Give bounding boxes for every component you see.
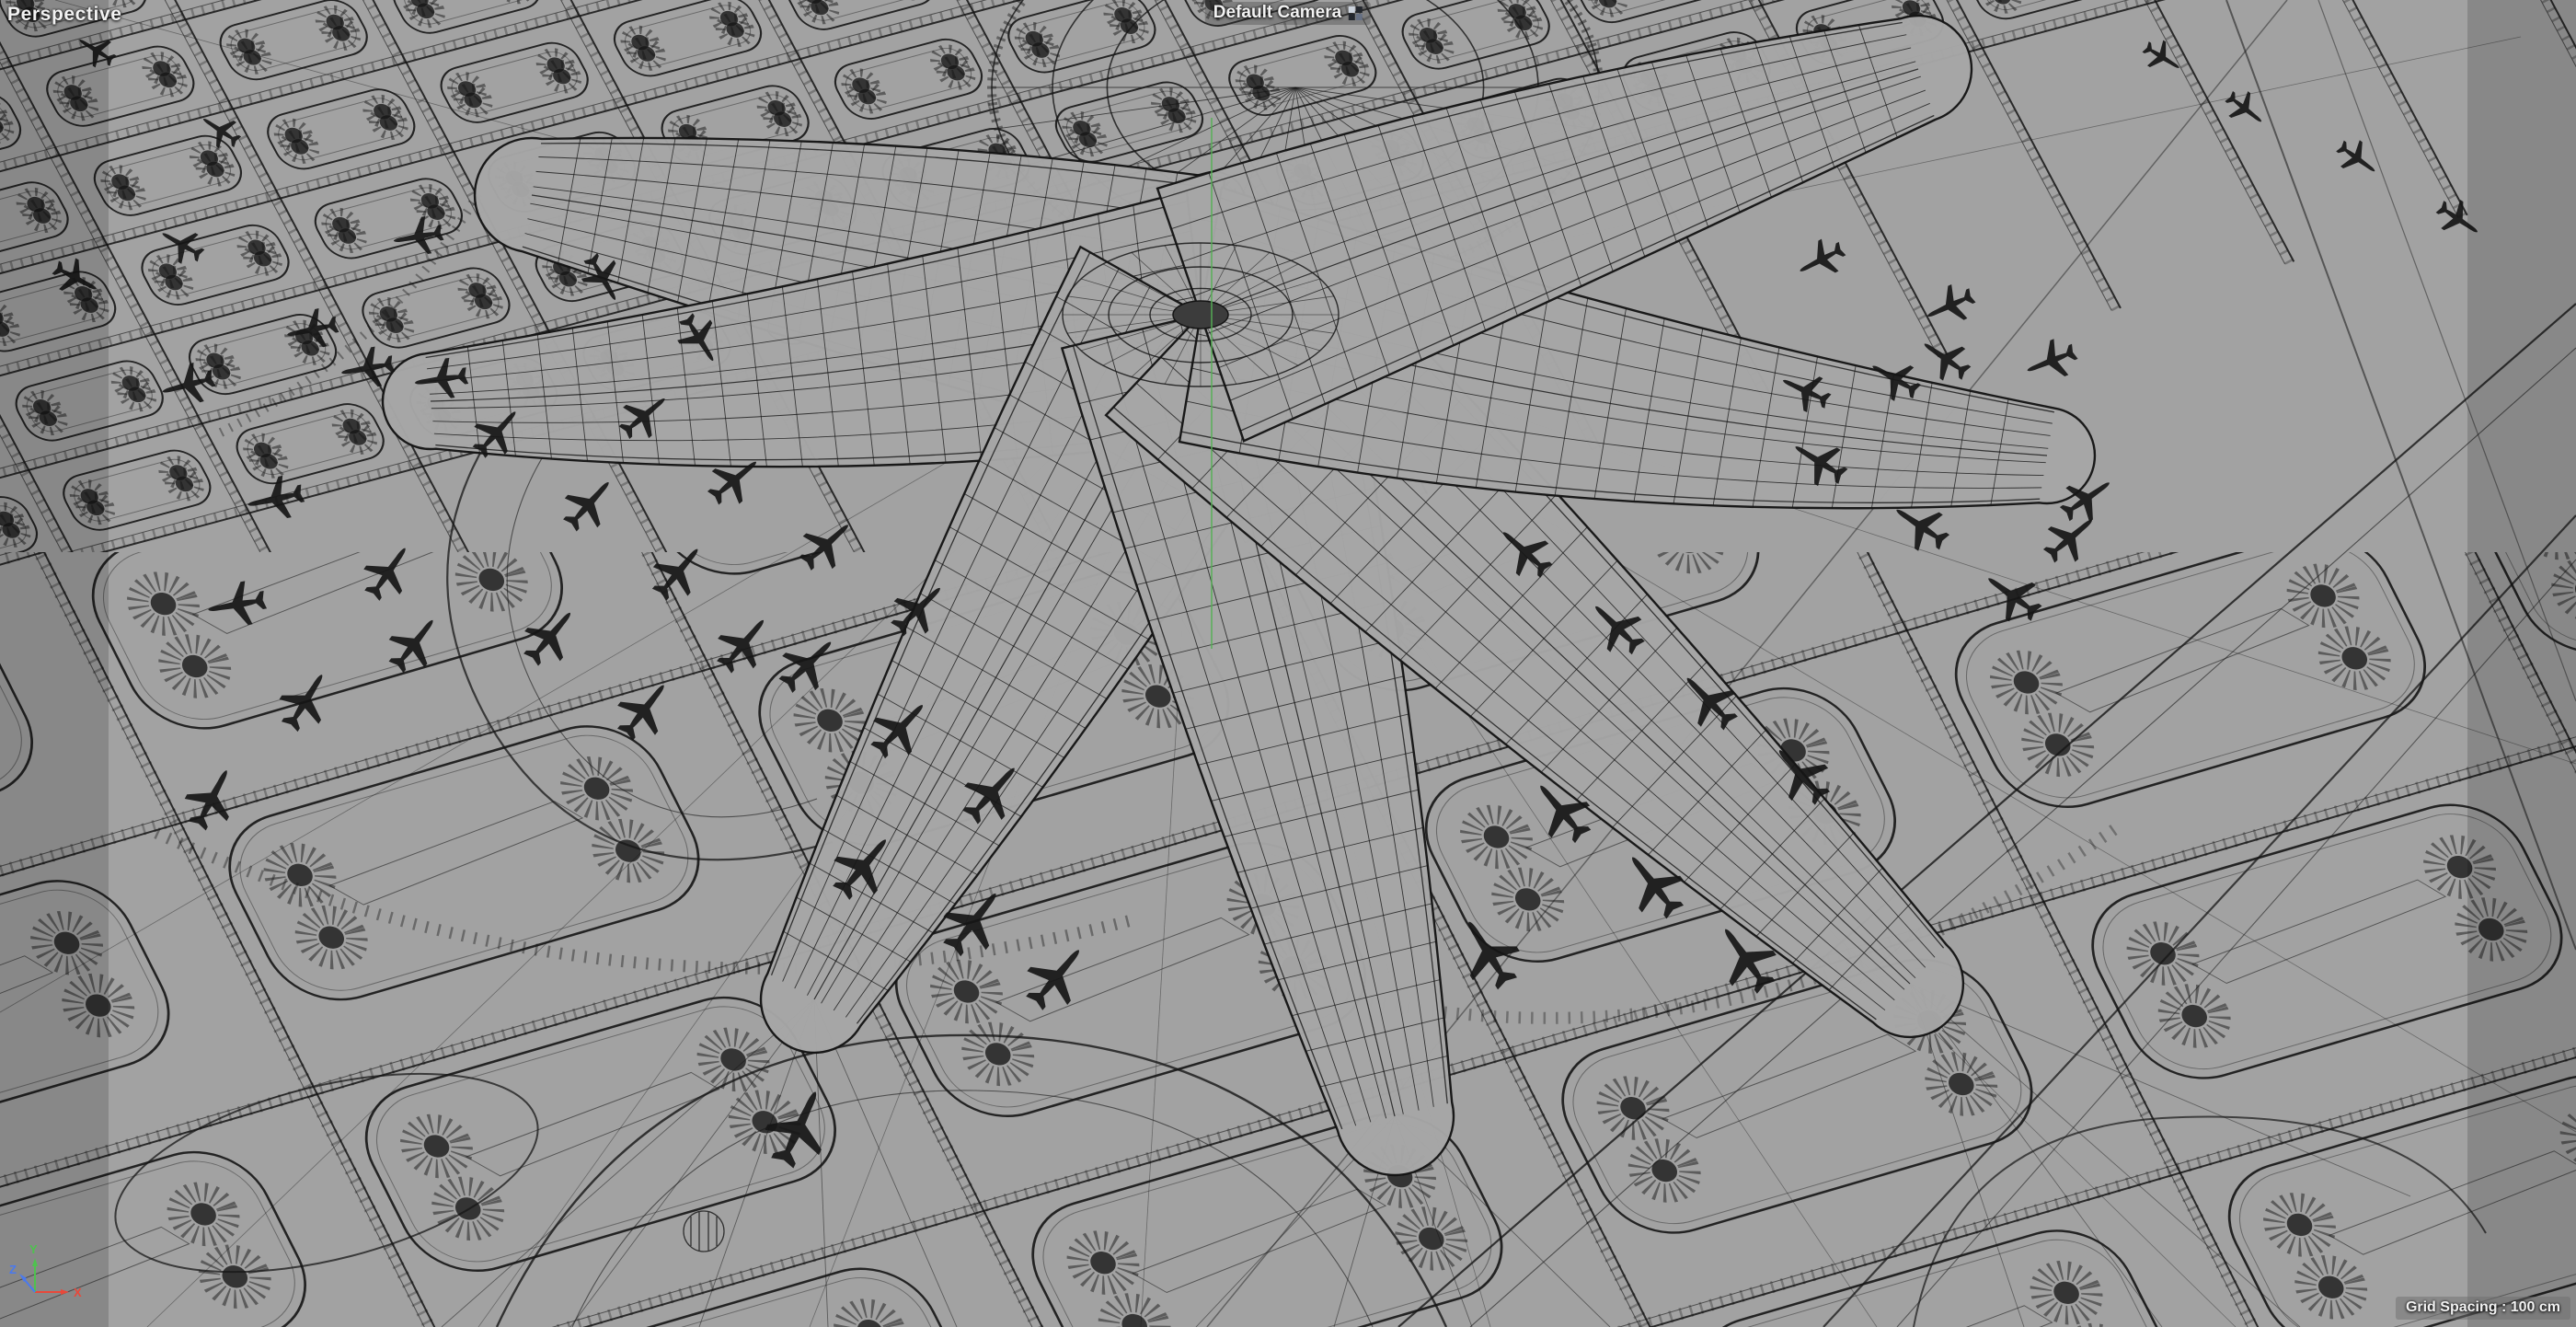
- camera-menu-icon[interactable]: [1349, 6, 1363, 20]
- axis-y-arrow-icon: [32, 1258, 38, 1266]
- axis-z-label: Z: [9, 1263, 17, 1276]
- camera-label[interactable]: Default Camera: [1205, 2, 1371, 25]
- axis-x-label: X: [74, 1286, 82, 1299]
- wireframe-scene: [0, 0, 2576, 1327]
- camera-menu-icon-dot: [1349, 6, 1355, 13]
- camera-label-text: Default Camera: [1213, 3, 1341, 23]
- viewport-3d[interactable]: Perspective Default Camera Grid Spacing …: [0, 0, 2576, 1327]
- camera-menu-icon-dot: [1356, 6, 1363, 13]
- axis-x-arrow-icon: [61, 1289, 69, 1295]
- axis-z-line: [25, 1280, 35, 1292]
- camera-menu-icon-dot: [1356, 14, 1363, 20]
- axis-y-label: Y: [29, 1242, 38, 1256]
- view-mode-label[interactable]: Perspective: [7, 4, 122, 26]
- grid-spacing-label: Grid Spacing : 100 cm: [2396, 1297, 2570, 1320]
- terminal-hub: [1063, 243, 1339, 387]
- world-axis-gizmo: X Y Z: [0, 1235, 129, 1327]
- camera-menu-icon-dot: [1349, 14, 1355, 20]
